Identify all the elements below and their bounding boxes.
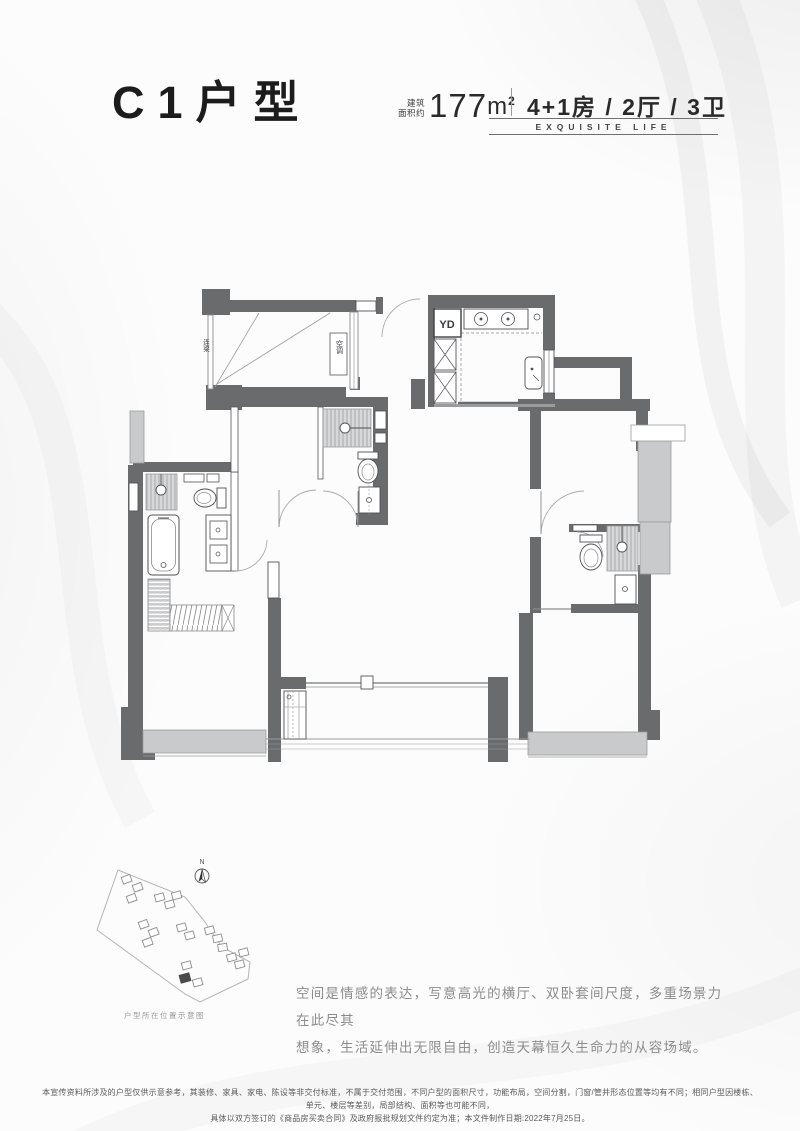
plan-labels: 连梁 空调 YD — [202, 319, 455, 355]
area-value: 177 — [429, 92, 487, 120]
header-divider — [511, 88, 512, 116]
description-line2: 想象，生活延伸出无限自由，创造天幕恒久生命力的从容场域。 — [296, 1034, 726, 1061]
disclaimer: 本宣传资料所涉及的户型仅供示意参考，其装修、家具、家电、陈设等非交付标准，不属于… — [40, 1086, 760, 1125]
ensuite-shower — [607, 526, 638, 571]
highlighted-building — [179, 973, 191, 983]
bath2-shower — [323, 409, 371, 447]
ensuite-sink — [615, 575, 636, 604]
flue-label: YD — [439, 319, 454, 331]
floorplan-page: C1户型 建筑 面积约 177 m 2 4+1房 / 2厅 / 3卫 EXQUI… — [0, 0, 800, 1131]
master-toilet — [194, 488, 226, 508]
description-line1: 空间是情感的表达，写意高光的横厅、双卧套间尺度，多重场景力在此尽其 — [296, 980, 726, 1034]
wardrobe-end-box — [222, 605, 234, 631]
master-suite-door-arc — [279, 490, 316, 527]
ensuite-toilet — [580, 535, 602, 570]
bath2-sink — [359, 485, 380, 515]
master-bath-door-arc — [236, 540, 267, 571]
area-unit: m — [487, 94, 507, 120]
site-map: N — [90, 852, 270, 1012]
bathtub — [148, 515, 179, 575]
fixtures — [146, 309, 638, 739]
room-spec: 4+1房 / 2厅 / 3卫 — [527, 88, 727, 122]
buildings — [121, 874, 249, 986]
wardrobe-horizontal — [170, 605, 222, 631]
bath2-toilet — [358, 452, 378, 483]
area-prefix-top: 建筑 — [398, 98, 425, 108]
bath2-door-arc — [323, 491, 358, 527]
north-label: N — [199, 859, 204, 866]
floor-plan: 连梁 空调 YD — [118, 287, 690, 765]
area-prefix-label: 建筑 面积约 — [398, 98, 425, 120]
disclaimer-line1: 本宣传资料所涉及的户型仅供示意参考，其装修、家具、家电、陈设等非交付标准，不属于… — [40, 1086, 760, 1112]
entry-door-arc — [382, 299, 420, 337]
site-map-caption: 户型所在位置示意图 — [124, 1010, 205, 1021]
kitchen-sink — [525, 357, 542, 389]
site-boundary — [97, 870, 250, 1002]
north-arrow: N — [195, 859, 209, 883]
wardrobe-vertical — [148, 579, 170, 631]
disclaimer-line2: 具体以双方签订的《商品房买卖合同》及政府报批规划文件约定为准；本文件制作日期:2… — [40, 1112, 760, 1125]
area-prefix-bottom: 面积约 — [398, 108, 425, 118]
tagline-band: EXQUISITE LIFE — [489, 118, 718, 135]
description: 空间是情感的表达，写意高光的横厅、双卧套间尺度，多重场景力在此尽其 想象，生活延… — [296, 980, 726, 1061]
unit-title: C1户型 — [112, 80, 312, 125]
area-block: 建筑 面积约 177 m 2 — [398, 86, 514, 120]
stove — [464, 309, 528, 329]
tagline-text: EXQUISITE LIFE — [489, 119, 718, 134]
master-shower — [146, 474, 177, 510]
heater-closet — [284, 691, 306, 739]
ac-label: 空调 — [336, 339, 344, 355]
kitchen-faucet — [534, 314, 540, 320]
double-vanity — [206, 515, 231, 571]
